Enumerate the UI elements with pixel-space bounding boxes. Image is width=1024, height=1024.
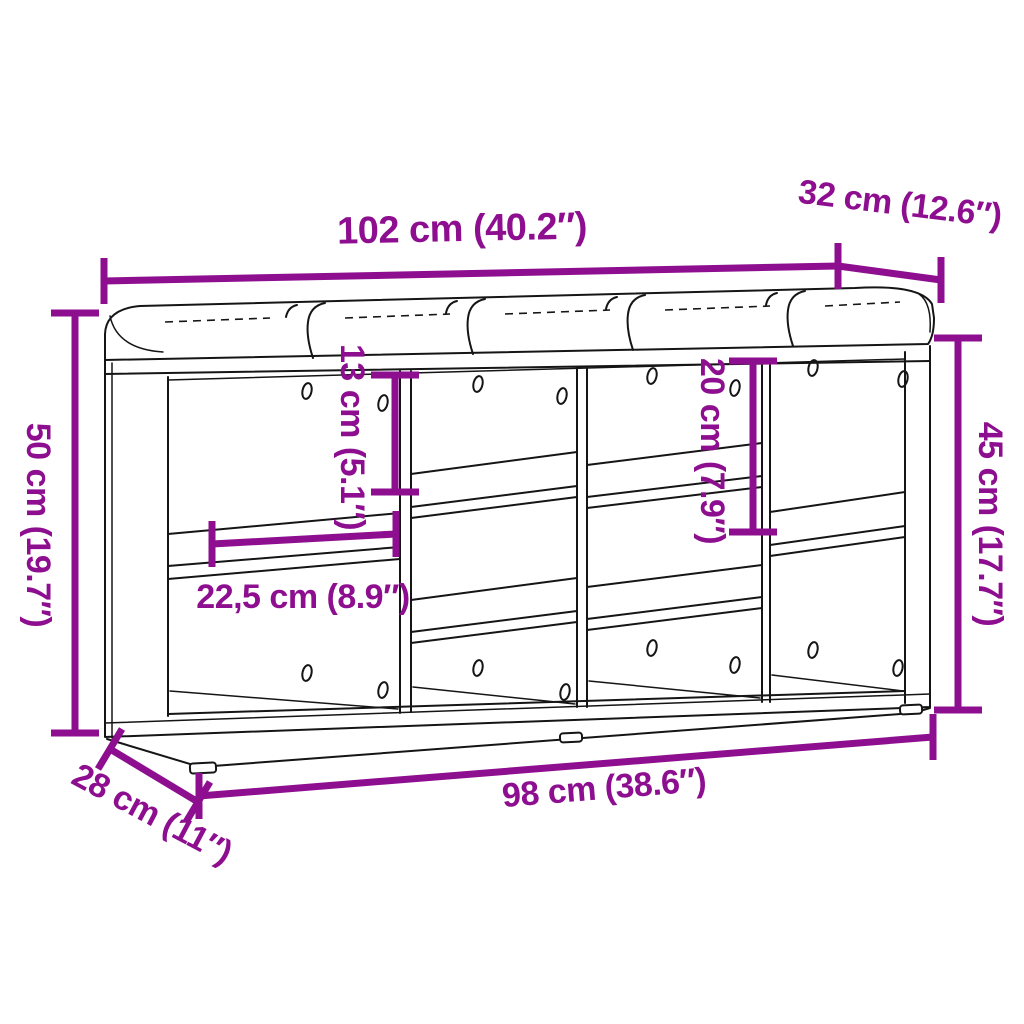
base-and-feet	[107, 704, 930, 773]
shoe-bench-illustration	[0, 0, 1024, 1024]
dimension-label-top-width: 102 cm (40.2″)	[337, 207, 588, 250]
cushion	[105, 287, 934, 360]
dimension-label-left-height: 50 cm (19.7″)	[21, 423, 55, 627]
bench-cabinet	[105, 287, 934, 773]
dimension-label-compartment-width: 22,5 cm (8.9″)	[196, 580, 409, 614]
dimension-label-shelf-gap-13: 13 cm (5.1″)	[335, 344, 369, 530]
dimension-label-right-height: 45 cm (17.7″)	[973, 422, 1007, 626]
floor-lines	[170, 675, 903, 709]
cushion-left-roll	[110, 316, 163, 352]
dimension-label-shelf-gap-20: 20 cm (7.9″)	[695, 358, 729, 544]
dimension-diagram: 102 cm (40.2″) 32 cm (12.6″) 50 cm (19.7…	[0, 0, 1024, 1024]
